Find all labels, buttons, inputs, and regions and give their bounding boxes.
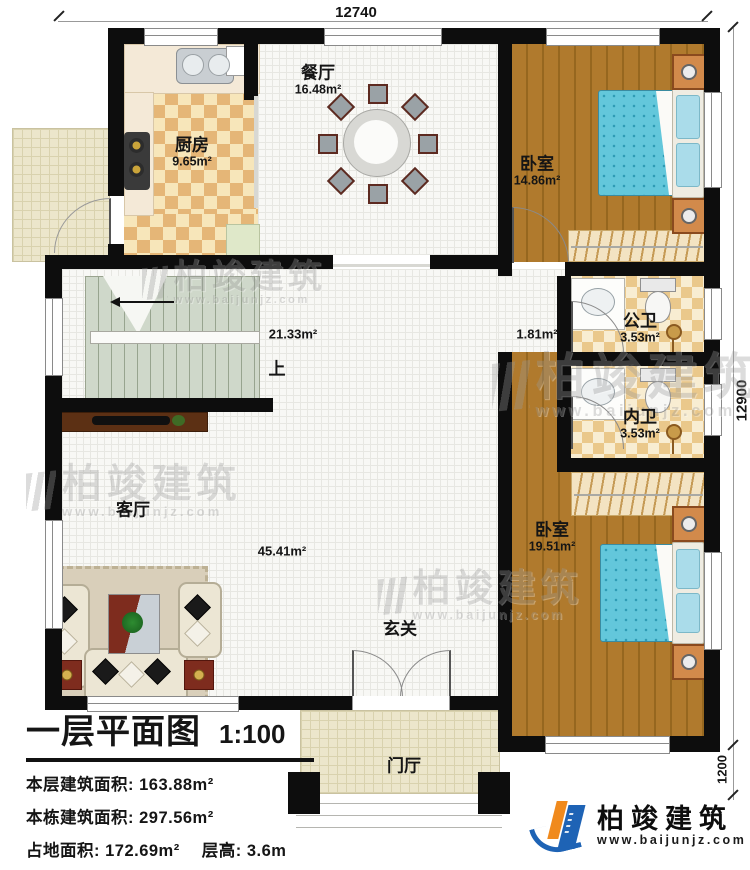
wall	[108, 28, 124, 196]
kitchen-dining-wall	[244, 28, 258, 100]
side-table-right	[184, 660, 214, 690]
room-label-bedroom-top: 卧室 14.86m²	[514, 154, 561, 187]
title-block: 一层平面图 1:100 本层建筑面积: 163.88m² 本栋建筑面积: 297…	[26, 704, 314, 861]
public-bath-toilet-tank	[640, 278, 676, 292]
side-table-ornament	[194, 670, 205, 681]
dimension-tick	[53, 10, 64, 21]
wall	[704, 434, 720, 552]
dimension-tick	[701, 10, 712, 21]
corridor-area-label: 1.81m²	[516, 328, 557, 343]
dining-chair	[368, 84, 388, 104]
wall	[704, 186, 720, 288]
living-side-window	[45, 520, 63, 629]
brand-url: www.baijunjz.com	[597, 834, 746, 847]
public-bath-shower	[666, 324, 682, 340]
dining-chair	[368, 184, 388, 204]
watermark-logo-icon	[26, 471, 56, 512]
dining-chair	[318, 134, 338, 154]
armchair	[178, 582, 222, 658]
wardrobe-top	[568, 230, 706, 262]
room-label-public-bath: 公卫 3.53m²	[620, 311, 660, 344]
wall	[668, 736, 720, 752]
plan-scale: 1:100	[219, 719, 286, 750]
nightstand-knob	[681, 654, 697, 670]
watermark: 柏竣建筑www.baijunjz.com	[378, 570, 583, 622]
hall-area-label: 21.33m²	[269, 328, 317, 343]
room-label-kitchen: 厨房 9.65m²	[172, 135, 212, 168]
room-label-bedroom-bottom: 卧室 19.51m²	[529, 520, 576, 553]
dining-chair	[418, 134, 438, 154]
porch-floor	[300, 710, 500, 794]
inner-bath-shower-arm	[672, 438, 674, 454]
bed-top-quilt	[598, 90, 676, 196]
wall	[216, 28, 324, 44]
building-area-line: 本栋建筑面积: 297.56m²	[26, 804, 314, 828]
watermark-logo-icon	[492, 360, 530, 411]
title-underline	[26, 758, 314, 762]
wall	[430, 255, 498, 269]
nightstand-knob	[681, 64, 697, 80]
side-table-ornament	[62, 670, 73, 681]
bedroom-top-left-wall	[498, 44, 512, 262]
floor-plan: 12740 12900 1200 柏竣建筑www.baijunjz.com 柏竣…	[0, 0, 750, 870]
wall	[704, 28, 720, 92]
nightstand-knob	[681, 516, 697, 532]
plan-title: 一层平面图	[26, 704, 201, 753]
wall	[448, 696, 505, 710]
bed-bottom-quilt	[600, 544, 676, 642]
stair-window	[45, 298, 63, 376]
nightstand	[672, 506, 706, 542]
room-label-inner-bath: 内卫 3.53m²	[620, 407, 660, 440]
bedroom-bottom-side-window	[704, 552, 722, 650]
stove-burner	[129, 162, 144, 177]
nightstand	[672, 198, 706, 234]
watermark-logo-icon	[142, 266, 168, 301]
porch-steps	[296, 792, 502, 832]
stair-direction-arrow	[110, 297, 120, 307]
wardrobe-rail	[571, 246, 703, 248]
public-bath-window	[704, 288, 722, 340]
wardrobe-rail	[574, 494, 703, 496]
stairs-up-label: 上	[269, 359, 286, 378]
wall	[557, 458, 704, 472]
dimension-top-label: 12740	[316, 4, 396, 21]
stove-burner	[129, 138, 144, 153]
pillow	[676, 143, 700, 187]
brand-logo-icon	[536, 799, 588, 853]
wall	[498, 262, 512, 276]
sink-basin	[182, 54, 204, 76]
porch-label: 门厅	[387, 756, 421, 775]
kitchen-dining-divider	[254, 96, 258, 208]
porch-column-right	[478, 772, 510, 814]
nightstand-knob	[681, 208, 697, 224]
stair-living-wall	[45, 398, 273, 412]
console-plant	[172, 415, 185, 426]
dining-table-top	[354, 120, 398, 164]
bedroom-top-side-window	[704, 92, 722, 188]
dining-window	[324, 28, 442, 46]
watermark: 柏竣建筑www.baijunjz.com	[142, 260, 326, 306]
pillow	[676, 593, 700, 633]
fridge	[226, 224, 260, 256]
nightstand	[672, 54, 706, 90]
kitchen-window	[144, 28, 218, 46]
room-label-living: 客厅	[116, 500, 150, 519]
bedroom-bottom-window	[545, 736, 670, 754]
wall	[498, 736, 545, 752]
wall	[440, 28, 546, 44]
inner-bath-shower	[666, 424, 682, 440]
nightstand	[672, 644, 706, 680]
staircase-railing	[90, 331, 260, 344]
room-label-dining: 餐厅 16.48m²	[295, 63, 342, 96]
pillow	[676, 549, 700, 589]
watermark-logo-icon	[378, 576, 407, 615]
dimension-line-top	[58, 21, 708, 22]
entry-label: 玄关	[383, 619, 417, 638]
sink-basin	[208, 54, 230, 76]
brand-logo: 柏竣建筑 www.baijunjz.com	[536, 799, 746, 853]
tv	[92, 416, 170, 425]
site-area-line: 占地面积: 172.69m²层高: 3.6m	[26, 837, 314, 861]
brand-name: 柏竣建筑	[597, 805, 746, 833]
floor-area-line: 本层建筑面积: 163.88m²	[26, 771, 314, 795]
bedroom-top-window	[546, 28, 660, 46]
dimension-porch-label: 1200	[715, 740, 730, 800]
living-area-label: 45.41m²	[258, 545, 306, 560]
wall	[565, 262, 704, 276]
entry-door-sill	[352, 696, 450, 710]
coffee-table-plant	[122, 612, 143, 633]
dining-hall-divider	[333, 264, 430, 267]
pillow	[676, 95, 700, 139]
